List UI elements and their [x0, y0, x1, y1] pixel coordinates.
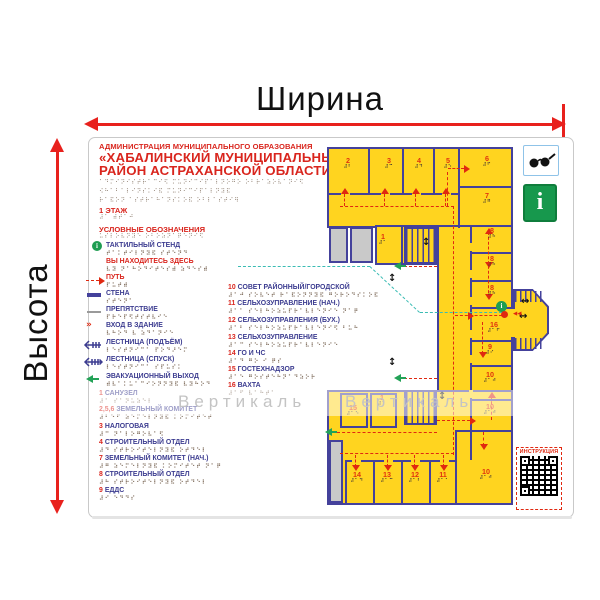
obstacle-line-icon [87, 311, 101, 313]
legend-label: ПУТЬ [106, 274, 124, 281]
title-braille-3: ⠗⠁⠯⠕⠝ ⠁⠎⠞⠗⠁⠓⠁⠝⠎⠅⠕⠯ ⠕⠃⠇⠁⠎⠞⠊⠻ [99, 197, 240, 204]
plan-room-braille: ⠼⠙ [408, 165, 430, 170]
panel-shadow [92, 516, 572, 519]
legend-braille: ⠞⠁⠅⠞⠊⠇⠝⠽⠯ ⠎⠞⠑⠝⠙ [106, 250, 189, 257]
route-arrowhead [412, 188, 420, 194]
legend-braille: ⠾⠧⠁⠅⠥⠁⠉⠊⠕⠝⠝⠽⠯ ⠧⠽⠓⠕⠙ [106, 381, 211, 388]
watermark-text: Вертикаль [345, 392, 473, 412]
entrance-two-way-arrow-icon: ↔ [521, 297, 529, 307]
plan-wall [401, 225, 403, 265]
plan-room-braille: ⠼⠊ [479, 351, 501, 356]
legend-item-stairs-up: ЛЕСТНИЦА (ПОДЪЁМ) ⠇⠑⠎⠞⠝⠊⠉⠁ ⠏⠕⠙⠜⠑⠍ [106, 339, 189, 354]
legend-braille: ⠏⠥⠞⠾ [106, 282, 129, 289]
plan-wall [470, 280, 513, 282]
stairs-down-icon [83, 357, 103, 367]
plan-room-braille: ⠼⠁⠉ [376, 479, 398, 484]
floor-braille: ⠼⠁ ⠾⠞⠁⠚ [99, 214, 134, 221]
plan-gray-room [329, 227, 348, 263]
plan-room-braille: ⠼⠋ [476, 163, 498, 168]
plan-wall [433, 147, 435, 195]
evac-exit-arrow-stem [400, 265, 406, 267]
plan-room-braille: ⠼⠁⠙ [346, 479, 368, 484]
evac-exit-arrow-stem [400, 377, 406, 379]
room-list-item-11: 11СЕЛЬХОЗУПРАВЛЕНИЕ (НАЧ.) ⠼⠁⠁ ⠎⠑⠇⠓⠕⠵⠥⠏⠗… [228, 300, 359, 315]
door-gap [469, 270, 473, 278]
route-arrowhead [442, 188, 450, 194]
height-dimension-arrow [56, 148, 59, 504]
legend-label: ВЫ НАХОДИТЕСЬ ЗДЕСЬ [106, 258, 194, 265]
staircase-top [404, 227, 437, 264]
you-are-here-line [238, 266, 370, 267]
room-list-item-15: 15ГОСТЕХНАДЗОР ⠼⠁⠑ ⠛⠕⠎⠞⠑⠓⠝⠁⠙⠵⠕⠗ [228, 366, 316, 381]
stairs-updown-arrow-icon: ↕ [388, 274, 396, 284]
sign-title-line2: РАЙОН АСТРАХАНСКОЙ ОБЛАСТИ» [99, 164, 339, 178]
qr-code [520, 456, 558, 496]
legend-item-stairs-down: ЛЕСТНИЦА (СПУСК) ⠇⠑⠎⠞⠝⠊⠉⠁ ⠎⠏⠥⠎⠅ [106, 356, 183, 371]
route-branch [445, 194, 446, 206]
entrance-direction-arrows: ◀◀ [513, 312, 521, 318]
width-dimension-label: Ширина [180, 80, 460, 118]
legend-label: ТАКТИЛЬНЫЙ СТЕНД [106, 242, 180, 249]
vestibule-hatch-bottom [515, 338, 545, 349]
route-arrowhead [464, 165, 470, 173]
exit-arrow-stem [92, 378, 99, 380]
qr-finder [520, 456, 530, 466]
door-gap [411, 459, 420, 463]
room-list-item-7: 7ЗЕМЕЛЬНЫЙ КОМИТЕТ (НАЧ.) ⠼⠛ ⠵⠑⠍⠑⠇⠝⠽⠯ ⠅⠕… [99, 455, 222, 470]
plan-wall [470, 365, 513, 367]
room-list-item-10: 10СОВЕТ РАЙОННЫЙ/ГОРОДСКОЙ ⠼⠁⠚ ⠎⠕⠧⠑⠞ ⠗⠁⠯… [228, 284, 379, 299]
legend-label: ПРЕПЯТСТВИЕ [106, 306, 158, 313]
route-arrowhead [470, 417, 476, 425]
route-exit-left-bottom [404, 378, 437, 379]
legend-label: ВХОД В ЗДАНИЕ [106, 322, 163, 329]
plan-wall [401, 460, 403, 505]
route-entrance-branch [455, 315, 507, 316]
plan-room-braille: ⠼⠓ [481, 263, 503, 268]
vestibule-hatch-top [515, 291, 545, 302]
plan-room-braille: ⠼⠓ [481, 292, 503, 297]
wall-line-icon [87, 293, 101, 297]
room-list-item-14: 14ГО И ЧС ⠼⠁⠙ ⠛⠕ ⠊ ⠟⠎ [228, 350, 283, 365]
route-branch [447, 172, 448, 206]
route-arrowhead [341, 188, 349, 194]
room-list-item-8: 8СТРОИТЕЛЬНЫЙ ОТДЕЛ ⠼⠓ ⠎⠞⠗⠕⠊⠞⠑⠇⠝⠽⠯ ⠕⠞⠙⠑⠇ [99, 471, 208, 486]
route-arrowhead [381, 188, 389, 194]
route-branch [344, 194, 345, 206]
legend-item-evac-exit: ЭВАКУАЦИОННЫЙ ВЫХОД ⠾⠧⠁⠅⠥⠁⠉⠊⠕⠝⠝⠽⠯ ⠧⠽⠓⠕⠙ [106, 373, 211, 388]
room-list-item-13: 13СЕЛЬХОЗУПРАВЛЕНИЕ ⠼⠁⠉ ⠎⠑⠇⠓⠕⠵⠥⠏⠗⠁⠧⠇⠑⠝⠊⠑ [228, 334, 339, 349]
width-dimension-arrow [96, 123, 554, 126]
qr-instruction-block: ИНСТРУКЦИЯ [516, 447, 562, 510]
info-circle-icon: i [92, 241, 102, 251]
plan-gray-room [329, 440, 343, 503]
glasses-icon [524, 146, 558, 175]
route-branch [415, 194, 416, 206]
door-gap [384, 459, 393, 463]
plan-room-braille: ⠼⠉ [378, 165, 400, 170]
route-arrowhead [468, 312, 474, 320]
stairs-updown-arrow-icon: ↕ [388, 358, 396, 368]
plan-wall [402, 147, 404, 195]
title-braille-1: ⠁⠙⠍⠊⠝⠊⠎⠞⠗⠁⠉⠊⠫ ⠍⠥⠝⠊⠉⠊⠏⠁⠇⠝⠕⠛⠕ ⠕⠃⠗⠁⠵⠕⠧⠁⠝⠊⠫ [99, 179, 304, 186]
route-main-vertical [453, 206, 454, 455]
legend-braille: ⠧⠽ ⠝⠁⠓⠕⠙⠊⠞⠑⠎⠾ ⠵⠙⠑⠎⠾ [106, 266, 209, 273]
legend-title-braille: ⠥⠎⠇⠕⠧⠝⠽⠑ ⠕⠃⠕⠵⠝⠁⠟⠑⠝⠊⠫ [99, 233, 204, 240]
height-arrowhead-bottom [50, 500, 64, 514]
room-list-item-12: 12СЕЛЬХОЗУПРАВЛЕНИЯ (БУХ.) ⠼⠁⠃ ⠎⠑⠇⠓⠕⠵⠥⠏⠗… [228, 317, 359, 332]
legend-braille: ⠇⠑⠎⠞⠝⠊⠉⠁ ⠎⠏⠥⠎⠅ [106, 364, 183, 371]
route-exit-left-top [404, 266, 437, 267]
plan-wall [470, 227, 472, 460]
plan-room-braille: ⠼⠁⠚ [479, 379, 501, 384]
plan-room-braille: ⠼⠁⠃ [404, 479, 426, 484]
door-gap [469, 243, 473, 251]
door-gap [352, 459, 361, 463]
plan-gray-room [350, 227, 373, 263]
legend-braille: ⠏⠗⠑⠏⠫⠞⠎⠞⠧⠊⠑ [106, 314, 169, 321]
legend-label: СТЕНА [106, 290, 130, 297]
plan-room-braille: ⠼⠛ [476, 200, 498, 205]
info-sign-icon: i [523, 184, 557, 222]
plan-wall [368, 147, 370, 195]
legend-label: ЛЕСТНИЦА (СПУСК) [106, 356, 174, 363]
path-arrowhead [99, 277, 105, 285]
door-gap [469, 330, 473, 338]
plan-room-braille: ⠼⠁⠚ [475, 476, 497, 481]
room-list-item-4: 4СТРОИТЕЛЬНЫЙ ОТДЕЛ ⠼⠙ ⠎⠞⠗⠕⠊⠞⠑⠇⠝⠽⠯ ⠕⠞⠙⠑⠇ [99, 439, 208, 454]
plan-room-braille: ⠼⠓ [481, 235, 503, 240]
legend-item-obstacle: ПРЕПЯТСТВИЕ ⠏⠗⠑⠏⠫⠞⠎⠞⠧⠊⠑ [106, 306, 169, 321]
height-arrowhead-top [50, 138, 64, 152]
stairs-updown-arrow-icon: ↕ [422, 238, 430, 248]
legend-item-wall: СТЕНА ⠎⠞⠑⠝⠁ [106, 290, 134, 305]
plan-room-braille: ⠼⠃ [337, 165, 359, 170]
plan-room-braille: ⠼⠁ [372, 241, 394, 246]
title-braille-2: ⠪⠓⠁⠃⠁⠇⠊⠝⠎⠅⠊⠯ ⠍⠥⠝⠊⠉⠊⠏⠁⠇⠝⠽⠯ [99, 188, 231, 195]
legend-label: ЭВАКУАЦИОННЫЙ ВЫХОД [106, 373, 199, 380]
room-list-item-9: 9ЕДДС ⠼⠊ ⠑⠙⠙⠎ [99, 487, 136, 502]
legend-item-you-are-here: ВЫ НАХОДИТЕСЬ ЗДЕСЬ ⠧⠽ ⠝⠁⠓⠕⠙⠊⠞⠑⠎⠾ ⠵⠙⠑⠎⠾ [106, 258, 209, 273]
legend-braille: ⠎⠞⠑⠝⠁ [106, 298, 134, 305]
product-image: Ширина Высота АДМИНИСТРАЦИЯ МУНИЦИПАЛЬНО… [0, 0, 600, 600]
plan-room-braille: ⠼⠑ [437, 165, 459, 170]
qr-label: ИНСТРУКЦИЯ [517, 449, 561, 455]
watermark-text: Вертикаль [178, 392, 306, 412]
entrance-arrows-icon: » [86, 321, 92, 330]
route-arrowhead [480, 444, 488, 450]
legend-item-tactile-stand: ТАКТИЛЬНЫЙ СТЕНД ⠞⠁⠅⠞⠊⠇⠝⠽⠯ ⠎⠞⠑⠝⠙ [106, 242, 189, 257]
door-gap [469, 297, 473, 305]
height-dimension-label: Высота [17, 243, 55, 403]
glasses-sign [523, 145, 559, 176]
legend-braille: ⠧⠓⠕⠙ ⠧ ⠵⠙⠁⠝⠊⠑ [106, 330, 175, 337]
qr-finder [520, 486, 530, 496]
route-corridor-top [340, 206, 454, 207]
plan-room-braille: ⠼⠁⠁ [432, 479, 454, 484]
route-branch [384, 194, 385, 206]
you-are-here-line [420, 312, 502, 313]
plan-wall [373, 460, 375, 505]
legend-item-path: ПУТЬ ⠏⠥⠞⠾ [106, 274, 129, 289]
qr-finder [548, 456, 558, 466]
stairs-up-icon [83, 340, 103, 350]
path-dashed-arrow-icon [86, 280, 99, 281]
route-exit-far-left [337, 432, 437, 433]
plan-room-braille: ⠼⠁⠋ [483, 329, 505, 334]
legend-label: ЛЕСТНИЦА (ПОДЪЁМ) [106, 339, 182, 346]
legend-item-entrance: ВХОД В ЗДАНИЕ ⠧⠓⠕⠙ ⠧ ⠵⠙⠁⠝⠊⠑ [106, 322, 175, 337]
you-are-here-marker [501, 311, 508, 318]
plan-wall [429, 460, 431, 505]
evac-exit-arrow-stem [331, 431, 337, 433]
door-gap [440, 459, 449, 463]
width-arrowhead-left [84, 117, 98, 131]
plan-wall [458, 186, 513, 188]
door-gap [469, 355, 473, 363]
room-list-item-3: 3НАЛОГОВАЯ ⠼⠉ ⠝⠁⠇⠕⠛⠕⠧⠁⠫ [99, 423, 165, 438]
route-corridor-bottom [340, 453, 454, 454]
legend-braille: ⠇⠑⠎⠞⠝⠊⠉⠁ ⠏⠕⠙⠜⠑⠍ [106, 347, 189, 354]
